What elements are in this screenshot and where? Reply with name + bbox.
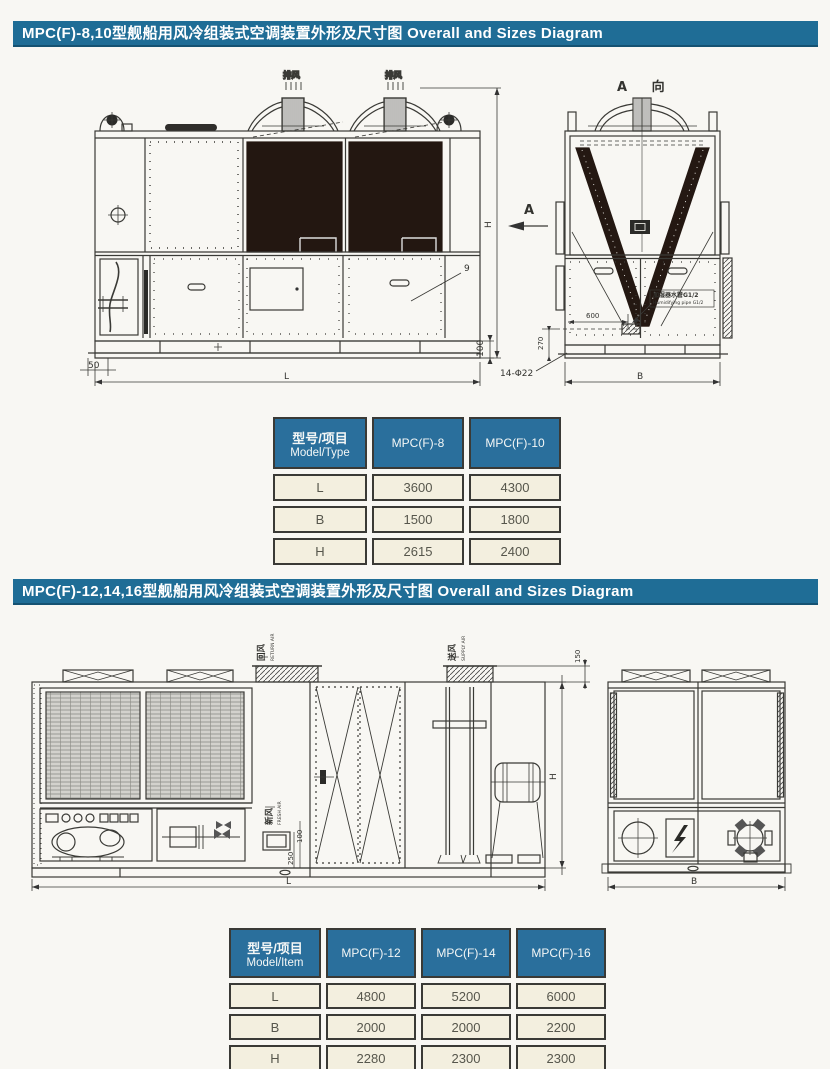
- drawing-mpc8-10: 排风 排风: [0, 52, 830, 402]
- row-label: B: [229, 1014, 321, 1040]
- dimension-100: 100: [476, 335, 494, 364]
- a-view-title: A 向: [617, 79, 675, 95]
- cell-value: 4800: [326, 983, 416, 1009]
- dimension-table-2: 型号/项目 Model/Item MPC(F)-12 MPC(F)-14 MPC…: [224, 923, 611, 1069]
- svg-text:回风: 回风: [257, 643, 267, 661]
- a-view: A 向: [500, 79, 732, 386]
- svg-text:B: B: [637, 372, 643, 382]
- view-direction-arrow: A: [508, 203, 548, 231]
- svg-text:250: 250: [287, 852, 295, 865]
- svg-text:新风: 新风: [264, 807, 275, 825]
- section1-title: MPC(F)-8,10型舰船用风冷组装式空调装置外形及尺寸图 Overall a…: [22, 25, 603, 42]
- dimension-150: 150: [493, 650, 590, 689]
- fresh-air-opening: 新风 FRESH AIR 250 100: [263, 801, 304, 868]
- fan-cowl-right: [350, 82, 440, 131]
- table1-corner: 型号/项目 Model/Type: [273, 417, 367, 469]
- cell-value: 2300: [516, 1045, 606, 1069]
- drawing-mpc12-16: 回风 RETURN AIR 送风 SUPPLY AIR 150: [0, 625, 830, 925]
- cell-value: 2200: [516, 1014, 606, 1040]
- svg-text:RETURN AIR: RETURN AIR: [270, 634, 276, 661]
- cell-value: 6000: [516, 983, 606, 1009]
- svg-text:L: L: [284, 372, 289, 382]
- condenser-grille-2: [146, 692, 244, 799]
- table2-col-mpc16: MPC(F)-16: [516, 928, 606, 978]
- valve-cluster: [728, 819, 772, 862]
- table2-col-mpc14: MPC(F)-14: [421, 928, 511, 978]
- valve-bay: [157, 809, 245, 861]
- dimension-table-1: 型号/项目 Model/Type MPC(F)-8 MPC(F)-10 L 36…: [268, 412, 566, 570]
- svg-text:9: 9: [464, 264, 470, 274]
- front-view: 排风 排风: [80, 70, 548, 386]
- svg-text:100: 100: [476, 340, 486, 357]
- dimension-L: L: [95, 362, 480, 386]
- dimension-L2: L: [32, 877, 545, 891]
- side-view: 回风 RETURN AIR 送风 SUPPLY AIR 150: [32, 634, 590, 891]
- compressor-bay: [40, 809, 152, 861]
- svg-text:送风: 送风: [447, 643, 458, 662]
- table1-col-mpc8: MPC(F)-8: [372, 417, 464, 469]
- dimension-H2: H: [545, 675, 566, 875]
- fan-cowl-left: [248, 82, 338, 131]
- roof-hatch-covers: [63, 670, 233, 682]
- table-row: L 3600 4300: [273, 474, 561, 501]
- supply-air-duct: 送风 SUPPLY AIR: [443, 636, 497, 682]
- svg-text:Humidifying pipe G1/2: Humidifying pipe G1/2: [653, 300, 704, 306]
- roof-hatch-covers-2: [622, 670, 770, 682]
- end-view: B: [602, 670, 791, 891]
- svg-text:B: B: [691, 877, 697, 887]
- svg-text:H: H: [549, 773, 559, 780]
- svg-text:L: L: [286, 877, 291, 887]
- cell-value: 4300: [469, 474, 561, 501]
- table-row: B 2000 2000 2200: [229, 1014, 606, 1040]
- callout-holes: 14-Φ22: [500, 353, 567, 379]
- dimension-B: B: [565, 362, 720, 386]
- svg-text:SUPPLY AIR: SUPPLY AIR: [461, 636, 467, 661]
- row-label: L: [229, 983, 321, 1009]
- svg-text:600: 600: [586, 312, 599, 320]
- dimension-50: 50: [80, 358, 116, 376]
- access-door: [250, 268, 303, 310]
- table-row: B 1500 1800: [273, 506, 561, 533]
- electrical-panel: [666, 819, 694, 857]
- cell-value: 2280: [326, 1045, 416, 1069]
- table-row: L 4800 5200 6000: [229, 983, 606, 1009]
- cell-value: 2300: [421, 1045, 511, 1069]
- cell-value: 2000: [326, 1014, 416, 1040]
- v-coil-left: [576, 148, 648, 326]
- cell-value: 3600: [372, 474, 464, 501]
- svg-text:H: H: [484, 221, 494, 228]
- cell-value: 2400: [469, 538, 561, 565]
- table-row: H 2615 2400: [273, 538, 561, 565]
- svg-text:150: 150: [574, 650, 582, 663]
- svg-text:50: 50: [88, 361, 100, 371]
- exhaust-air-label-2: 排风: [385, 70, 403, 81]
- svg-text:FRESH AIR: FRESH AIR: [277, 801, 283, 825]
- lifting-lug-right: [437, 112, 461, 131]
- x-braced-doors: [314, 687, 400, 863]
- table2-col-mpc12: MPC(F)-12: [326, 928, 416, 978]
- svg-text:100: 100: [296, 830, 304, 843]
- cell-value: 2000: [421, 1014, 511, 1040]
- catalog-page: MPC(F)-8,10型舰船用风冷组装式空调装置外形及尺寸图 Overall a…: [0, 0, 830, 1069]
- pipe-assembly: [98, 262, 128, 332]
- drain-fitting: [622, 324, 640, 334]
- v-coil-right: [637, 148, 709, 326]
- cell-value: 2615: [372, 538, 464, 565]
- row-label: L: [273, 474, 367, 501]
- return-air-duct: 回风 RETURN AIR: [252, 634, 322, 682]
- condenser-coil-left: [247, 142, 342, 252]
- row-label: H: [229, 1045, 321, 1069]
- lifting-lug-left: [100, 112, 132, 131]
- svg-text:270: 270: [537, 337, 545, 350]
- duct-column: [433, 687, 486, 863]
- nameplate: [630, 220, 650, 234]
- cell-value: 1800: [469, 506, 561, 533]
- dimension-B2: B: [608, 877, 785, 891]
- condenser-coil-right: [349, 142, 442, 252]
- cell-value: 1500: [372, 506, 464, 533]
- sight-glass: [618, 818, 658, 858]
- dimension-600: 600: [568, 312, 628, 328]
- svg-text:加湿器水管G1/2: 加湿器水管G1/2: [652, 291, 698, 299]
- svg-text:A: A: [524, 203, 534, 218]
- row-label: H: [273, 538, 367, 565]
- condenser-grille-1: [46, 692, 140, 799]
- dimension-270: 270: [537, 326, 556, 361]
- callout-9: 9: [411, 264, 470, 301]
- table-row: H 2280 2300 2300: [229, 1045, 606, 1069]
- row-label: B: [273, 506, 367, 533]
- fan-motor: [486, 763, 545, 863]
- section1-title-bar: MPC(F)-8,10型舰船用风冷组装式空调装置外形及尺寸图 Overall a…: [13, 21, 818, 47]
- table2-corner: 型号/项目 Model/Item: [229, 928, 321, 978]
- svg-text:14-Φ22: 14-Φ22: [500, 369, 533, 379]
- cell-value: 5200: [421, 983, 511, 1009]
- section2-title: MPC(F)-12,14,16型舰船用风冷组装式空调装置外形及尺寸图 Overa…: [22, 583, 633, 600]
- top-handle-bar: [165, 124, 217, 131]
- table1-col-mpc10: MPC(F)-10: [469, 417, 561, 469]
- section2-title-bar: MPC(F)-12,14,16型舰船用风冷组装式空调装置外形及尺寸图 Overa…: [13, 579, 818, 605]
- exhaust-air-label-1: 排风: [283, 70, 301, 81]
